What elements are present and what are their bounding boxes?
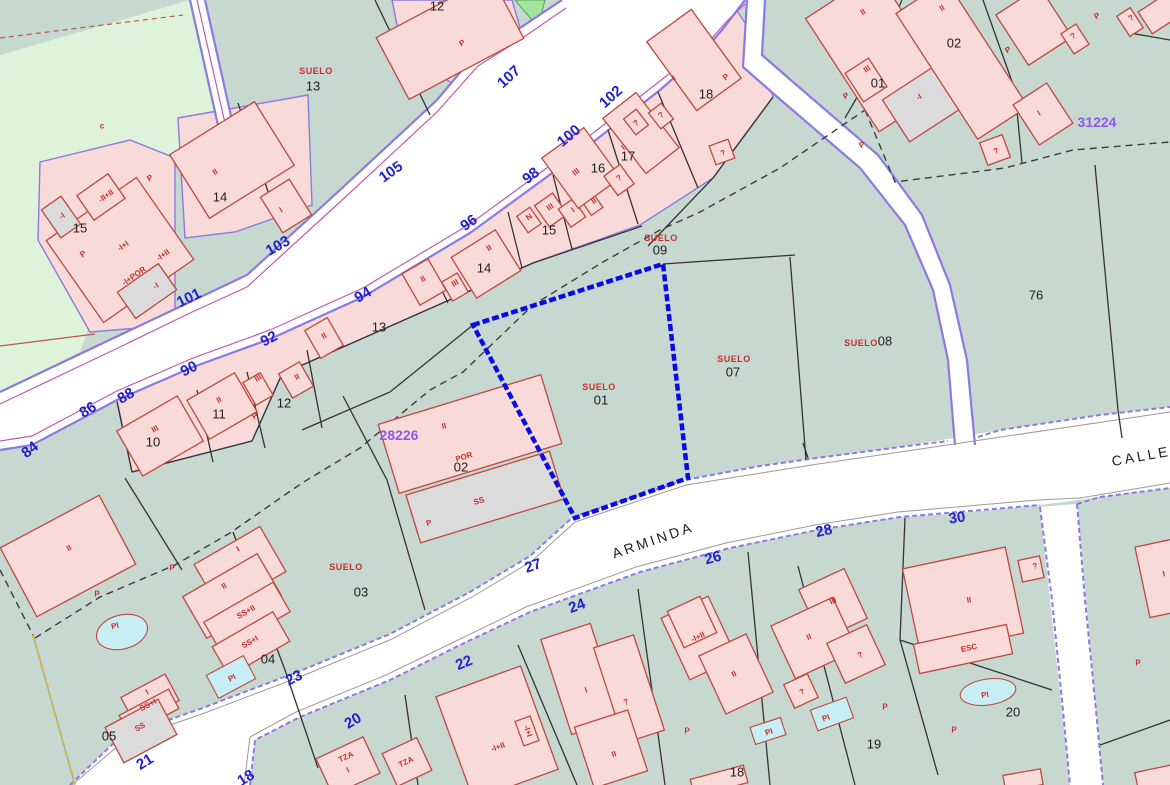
building-label: P: [882, 703, 888, 712]
parcel-number: 10: [146, 435, 160, 450]
suelo-label: SUELO: [644, 233, 678, 243]
parcel-number: 76: [1029, 288, 1043, 303]
parcel-number: 14: [477, 261, 491, 276]
building-label: P: [951, 726, 957, 735]
cadastral-code: 31224: [1078, 114, 1117, 130]
parcel-number: 19: [867, 737, 881, 752]
suelo-label: SUELO: [299, 66, 333, 76]
cadastral-map-viewport[interactable]: 1314151210111213141516171809070876010201…: [0, 0, 1170, 785]
cadastral-code: 28226: [380, 427, 419, 443]
street-number: 30: [948, 508, 967, 527]
parcel-number: 01: [871, 76, 885, 91]
parcel-number: 11: [212, 407, 226, 422]
parcel-number: 16: [591, 161, 605, 176]
building-label: c: [100, 122, 105, 131]
parcel-number: 18: [699, 87, 713, 102]
parcel-number: 15: [73, 221, 87, 236]
building-label: P: [1135, 659, 1141, 668]
parcel-number: 12: [430, 0, 444, 14]
parcel-number: 02: [947, 36, 961, 51]
parcel-number: 04: [261, 652, 275, 667]
building-label: P: [169, 564, 175, 573]
building-label: PI: [981, 690, 990, 700]
building-label: P: [94, 590, 100, 599]
parcel-number: 01: [594, 393, 608, 408]
parcel-number: 09: [653, 243, 667, 258]
suelo-label: SUELO: [717, 354, 751, 364]
parcel-number: 14: [213, 190, 227, 205]
suelo-label: SUELO: [329, 562, 363, 572]
parcel-number: 03: [354, 585, 368, 600]
parcel-number: 13: [306, 79, 320, 94]
parcel-number: 12: [277, 396, 291, 411]
suelo-label: SUELO: [582, 382, 616, 392]
parcel-number: 08: [878, 334, 892, 349]
building-label: P: [684, 727, 690, 736]
suelo-label: SUELO: [844, 338, 878, 348]
parcel-number: 13: [372, 320, 386, 335]
parcel-number: 15: [542, 223, 556, 238]
parcel-number: 18: [730, 765, 744, 780]
street-number: 28: [814, 521, 834, 541]
parcel-number: 05: [102, 729, 116, 744]
parcel-number: 07: [726, 365, 740, 380]
parcel-number: 20: [1006, 705, 1020, 720]
cadastral-map-canvas[interactable]: 1314151210111213141516171809070876010201…: [0, 0, 1170, 785]
